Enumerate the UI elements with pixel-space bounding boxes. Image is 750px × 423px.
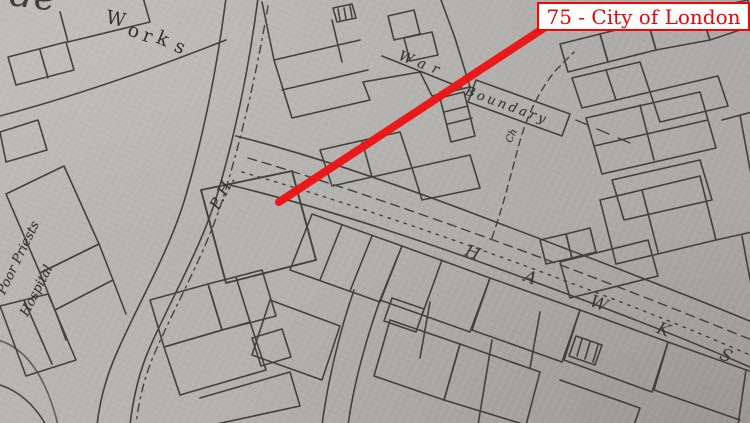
hawks-street bbox=[230, 136, 750, 368]
map-screenshot: de W o r k s War Boundary P.H. Poor Prie… bbox=[0, 0, 750, 423]
works-letter-w: W bbox=[104, 6, 128, 32]
buildings bbox=[0, 0, 750, 423]
annotation-label-text: 75 - City of London bbox=[546, 5, 740, 29]
map-line-art bbox=[0, 0, 750, 423]
annotation-label-box: 75 - City of London bbox=[537, 2, 750, 31]
